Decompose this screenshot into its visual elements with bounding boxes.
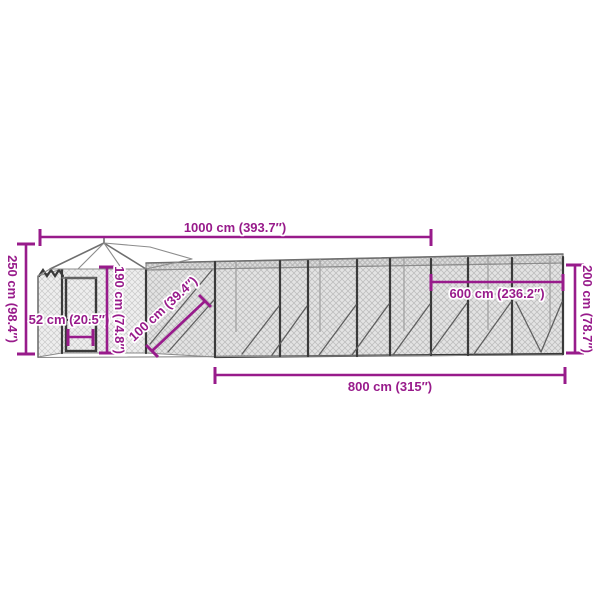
dimension-total-height: 250 cm (98.4″)	[5, 244, 35, 354]
total-height-label: 250 cm (98.4″)	[5, 255, 20, 343]
product-image: 1000 cm (393.7″) 250 cm (98.4″) 52 cm (2…	[0, 0, 600, 600]
coop-height-label: 190 cm (74.8″)	[112, 266, 127, 354]
roof-slope-back	[150, 247, 192, 259]
dimension-run-height: 200 cm (78.7″)	[566, 265, 595, 353]
dimension-total-length: 1000 cm (393.7″)	[40, 220, 431, 246]
roof-gable	[50, 243, 146, 269]
dimension-diagram-svg: 1000 cm (393.7″) 250 cm (98.4″) 52 cm (2…	[0, 0, 600, 600]
run-height-label: 200 cm (78.7″)	[580, 265, 595, 353]
total-length-label: 1000 cm (393.7″)	[184, 220, 286, 235]
covered-length-label: 600 cm (236.2″)	[449, 286, 544, 301]
door-width-label: 52 cm (20.5″)	[29, 312, 110, 327]
run-length-label: 800 cm (315″)	[348, 379, 432, 394]
dimension-run-length: 800 cm (315″)	[215, 367, 565, 394]
